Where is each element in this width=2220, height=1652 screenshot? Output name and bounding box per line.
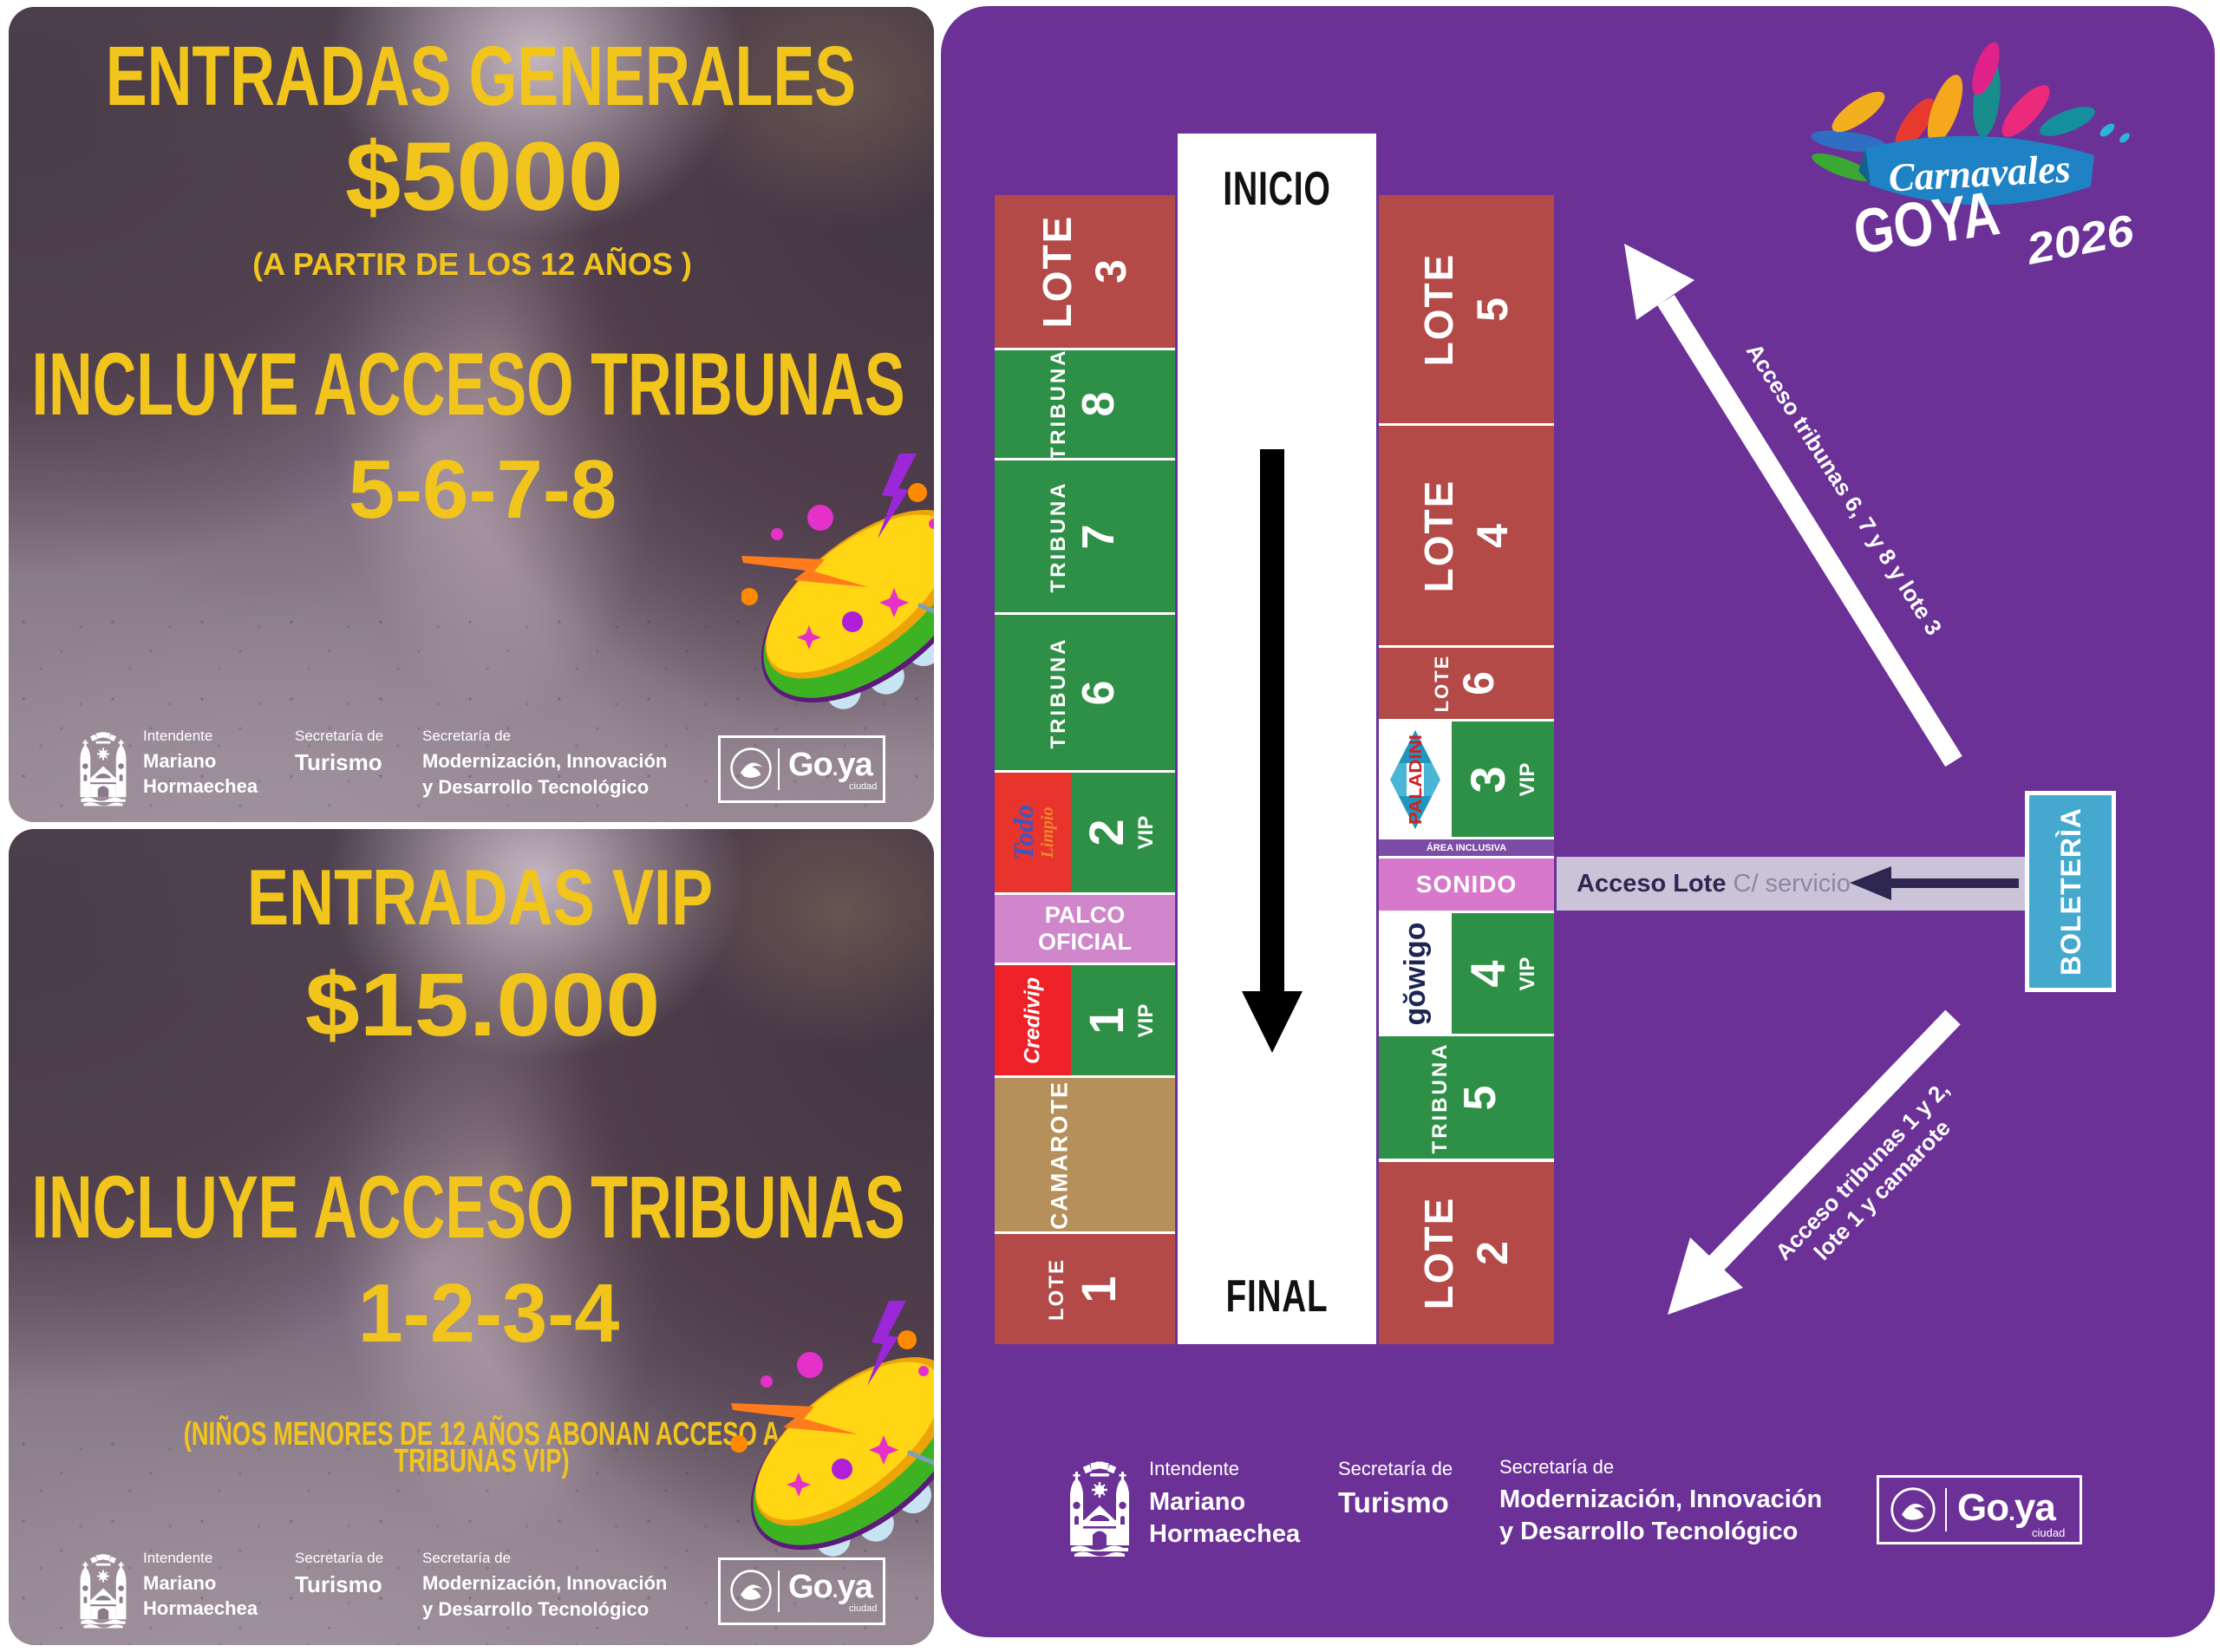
svg-text:GOYA: GOYA [1850, 179, 2003, 266]
svg-text:2026: 2026 [2021, 206, 2138, 266]
